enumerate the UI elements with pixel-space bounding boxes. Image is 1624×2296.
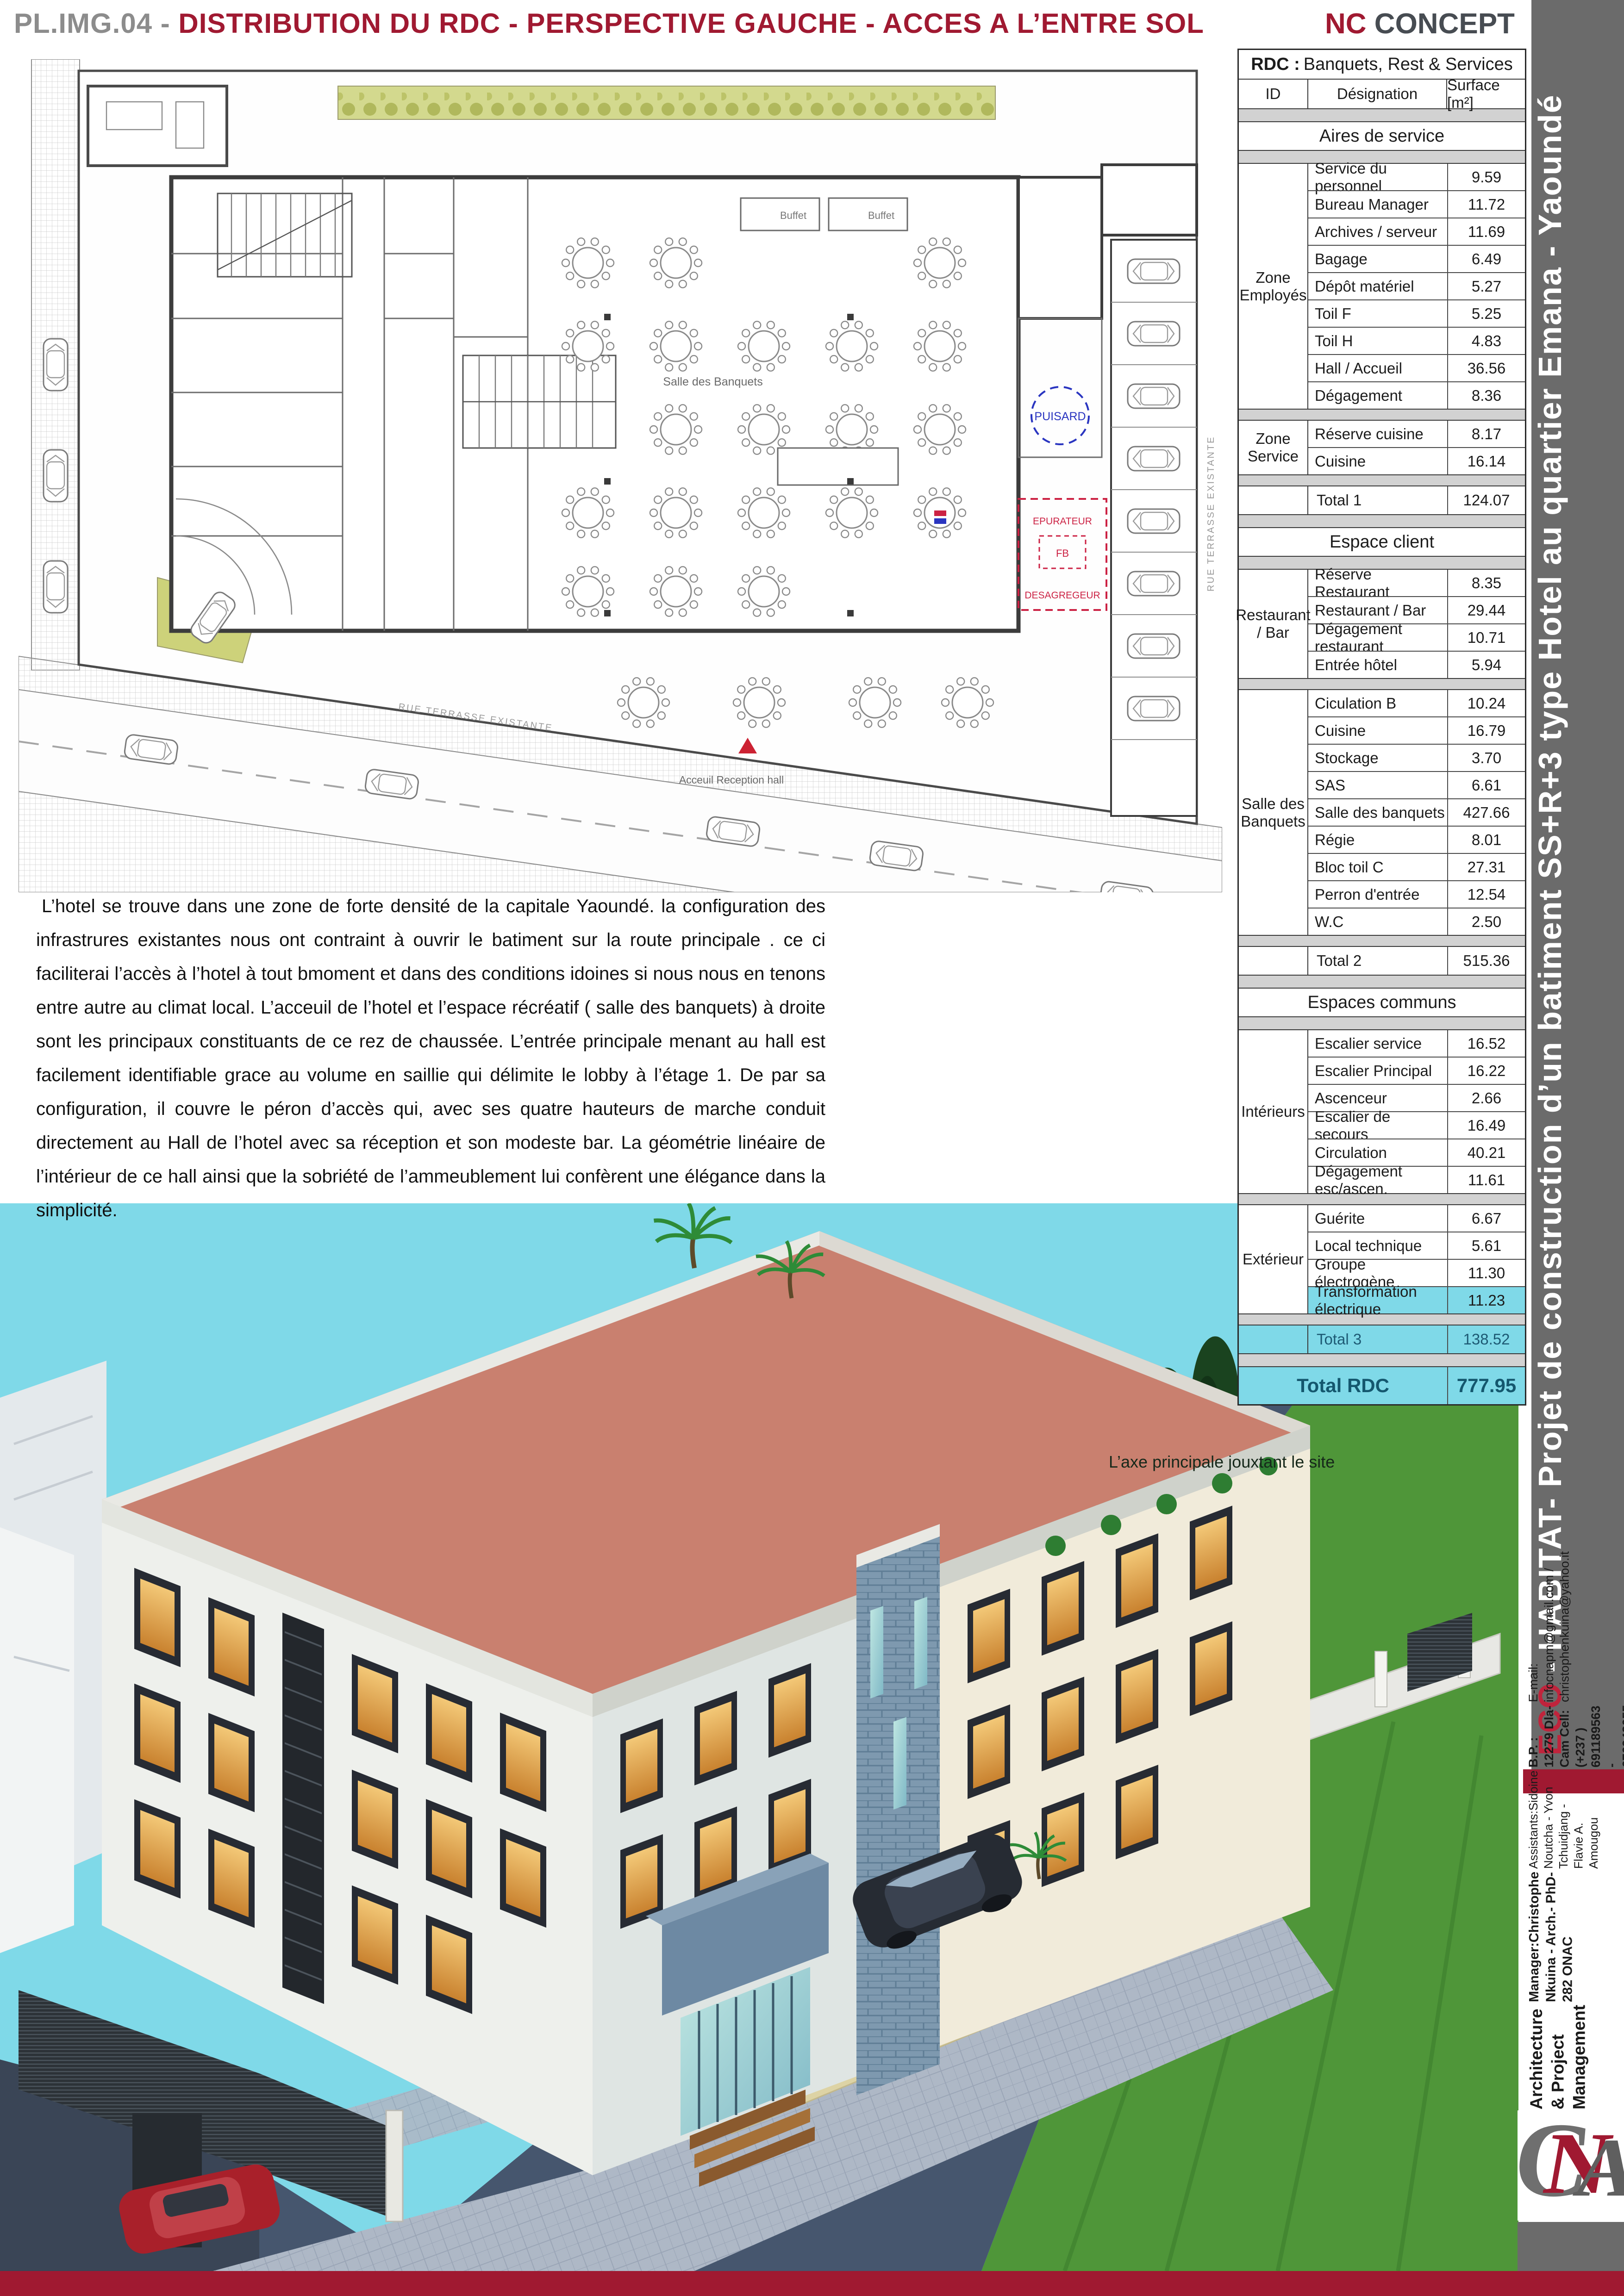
table-row: Restaurant / Bar29.44: [1308, 596, 1525, 623]
table-row: Bagage6.49: [1308, 245, 1525, 272]
zone-label: Zone Employés: [1239, 164, 1308, 409]
table-row: Ascenceur2.66: [1308, 1084, 1525, 1111]
brand-initials: NC: [1325, 8, 1367, 40]
reception-label: Acceuil Reception hall: [679, 774, 784, 786]
total-row: Total 2515.36: [1239, 946, 1525, 975]
floor-plan: Buffet Buffet PUISARD EPURATEUR FB DESAG…: [19, 59, 1222, 895]
zone-label: Intérieurs: [1239, 1030, 1308, 1193]
table-row: SAS6.61: [1308, 771, 1525, 798]
assistants-line: Assistants:Sidoine Noutcha - Yvon Tchuid…: [1526, 1770, 1624, 1868]
table-row: Archives / serveur11.69: [1308, 218, 1525, 245]
table-row: Réserve cuisine8.17: [1308, 421, 1525, 447]
zone-label: Salle des Banquets: [1239, 690, 1308, 935]
firm-name: Architecture & Project Management: [1526, 2005, 1624, 2109]
table-row: Bureau Manager11.72: [1308, 190, 1525, 218]
generator-annex: [88, 86, 227, 166]
banquet-hall-label: Salle des Banquets: [663, 375, 762, 388]
project-sidebar: ECO - HABITAT- Projet de construction d’…: [1531, 0, 1624, 1769]
table-row: Réserve Restaurant8.35: [1308, 570, 1525, 596]
street-label-right: RUE TERRASSE EXISTANTE: [1206, 436, 1216, 591]
table-row: Dépôt matériel5.27: [1308, 272, 1525, 299]
table-row: Bloc toil C27.31: [1308, 853, 1525, 880]
table-row: Ciculation B10.24: [1308, 690, 1525, 716]
area-table: RDC : Banquets, Rest & ServicesIDDésigna…: [1237, 49, 1526, 1406]
project-title: ECO - HABITAT- Projet de construction d’…: [1531, 0, 1624, 1769]
zone-label: Zone Service: [1239, 421, 1308, 474]
section-heading: Espace client: [1239, 527, 1525, 556]
zone-group: Restaurant / BarRéserve Restaurant8.35Re…: [1239, 569, 1525, 678]
address-line: B.P. : 12279 Dla-Cam Cell: (+237 ) 69118…: [1526, 1705, 1624, 1767]
table-row: Service du personnel9.59: [1308, 164, 1525, 190]
zone-group: Zone EmployésService du personnel9.59Bur…: [1239, 163, 1525, 409]
table-row: Groupe électrogène11.30: [1308, 1259, 1525, 1286]
table-row: W.C2.50: [1308, 908, 1525, 935]
project-title-rest: - HABITAT- Projet de construction d’un b…: [1532, 94, 1568, 1682]
buffet-label: Buffet: [868, 210, 894, 221]
company-brand: NC CONCEPT: [1325, 7, 1515, 40]
render-caption: L’axe principale jouxtant le site: [1109, 1452, 1335, 1472]
table-row: Dégagement restaurant10.71: [1308, 623, 1525, 651]
total-row: Total 1124.07: [1239, 485, 1525, 514]
zone-label: Restaurant / Bar: [1239, 570, 1308, 678]
contact-lines: Architecture & Project Management Manage…: [1526, 1795, 1624, 2109]
table-row: Cuisine16.14: [1308, 447, 1525, 474]
zone-group: Salle des BanquetsCiculation B10.24Cuisi…: [1239, 689, 1525, 935]
table-row: Guérite6.67: [1308, 1205, 1525, 1232]
table-row: Cuisine16.79: [1308, 716, 1525, 744]
fb-label: FB: [1056, 548, 1069, 559]
buffet-label: Buffet: [780, 210, 806, 221]
table-row: Escalier Principal16.22: [1308, 1057, 1525, 1084]
table-row: Transformation électrique11.23: [1308, 1286, 1525, 1313]
table-row: Perron d'entrée12.54: [1308, 880, 1525, 908]
zone-group: Zone ServiceRéserve cuisine8.17Cuisine16…: [1239, 420, 1525, 474]
table-row: Escalier service16.52: [1308, 1030, 1525, 1057]
table-row: Régie8.01: [1308, 826, 1525, 853]
manager-line: Manager:Christophe Nkuina - Arch.- PhD- …: [1526, 1872, 1624, 2002]
description-paragraph: L’hotel se trouve dans une zone de forte…: [36, 890, 825, 1227]
contact-block: Architecture & Project Management Manage…: [1526, 1795, 1624, 2109]
footer-red-band: [0, 2271, 1624, 2296]
firm-logo: C N A: [1518, 2110, 1624, 2221]
desagregeur-label: DESAGREGEUR: [1024, 590, 1100, 601]
table-title: RDC : Banquets, Rest & Services: [1239, 50, 1525, 79]
total-row: Total 3138.52: [1239, 1325, 1525, 1353]
grand-total-row: Total RDC777.95: [1239, 1366, 1525, 1404]
table-row: Escalier de secours16.49: [1308, 1111, 1525, 1139]
table-row: Dégagement8.36: [1308, 381, 1525, 409]
table-row: Circulation40.21: [1308, 1139, 1525, 1166]
floor-plan-drawing: Buffet Buffet PUISARD EPURATEUR FB DESAG…: [19, 59, 1222, 892]
table-header: IDDésignationSurface [m²]: [1239, 79, 1525, 108]
drawing-title: DISTRIBUTION DU RDC - PERSPECTIVE GAUCHE…: [170, 8, 1204, 39]
table-row: Local technique5.61: [1308, 1232, 1525, 1259]
table-row: Hall / Accueil36.56: [1308, 354, 1525, 381]
sheet-title: PL.IMG.04 - DISTRIBUTION DU RDC - PERSPE…: [14, 7, 1204, 39]
footer-gray-band: [1518, 2222, 1624, 2271]
table-row: Entrée hôtel5.94: [1308, 651, 1525, 678]
drawing-code: PL.IMG.04 -: [14, 8, 170, 39]
presentation-sheet: { "header": { "code": "PL.IMG.04 -", "ti…: [0, 0, 1624, 2296]
table-row: Salle des banquets427.66: [1308, 798, 1525, 826]
email-line: E-mail: infocnapm@gmail.com / christophe…: [1526, 1551, 1624, 1702]
zone-group: IntérieursEscalier service16.52Escalier …: [1239, 1029, 1525, 1193]
section-heading: Espaces communs: [1239, 988, 1525, 1016]
table-row: Dégagement esc/ascen.11.61: [1308, 1166, 1525, 1193]
table-row: Toil H4.83: [1308, 327, 1525, 354]
brand-name: CONCEPT: [1367, 8, 1515, 40]
table-row: Toil F5.25: [1308, 299, 1525, 327]
zone-group: ExtérieurGuérite6.67Local technique5.61G…: [1239, 1204, 1525, 1313]
zone-label: Extérieur: [1239, 1205, 1308, 1313]
puisard-label: PUISARD: [1034, 410, 1086, 423]
table-row: Stockage3.70: [1308, 744, 1525, 771]
epurateur-label: EPURATEUR: [1033, 516, 1092, 527]
section-heading: Aires de service: [1239, 121, 1525, 150]
